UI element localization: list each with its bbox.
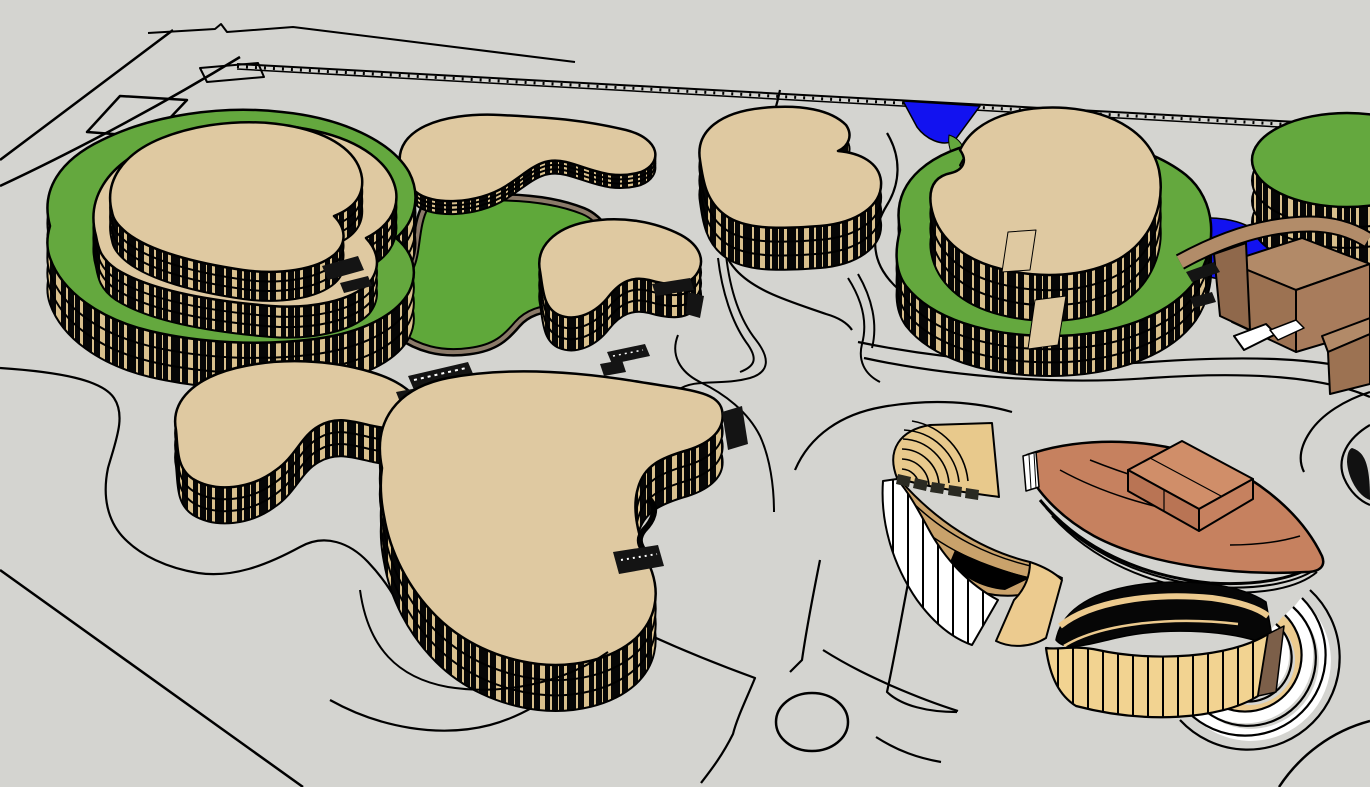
site-model-canvas[interactable] bbox=[0, 0, 1370, 787]
model-viewport[interactable] bbox=[0, 0, 1370, 787]
fan-crest-block-3 bbox=[930, 482, 945, 494]
fan-crest-block-4 bbox=[948, 485, 962, 497]
wall-pillar-1 bbox=[1002, 230, 1036, 272]
fan-crest-block-5 bbox=[965, 488, 979, 500]
